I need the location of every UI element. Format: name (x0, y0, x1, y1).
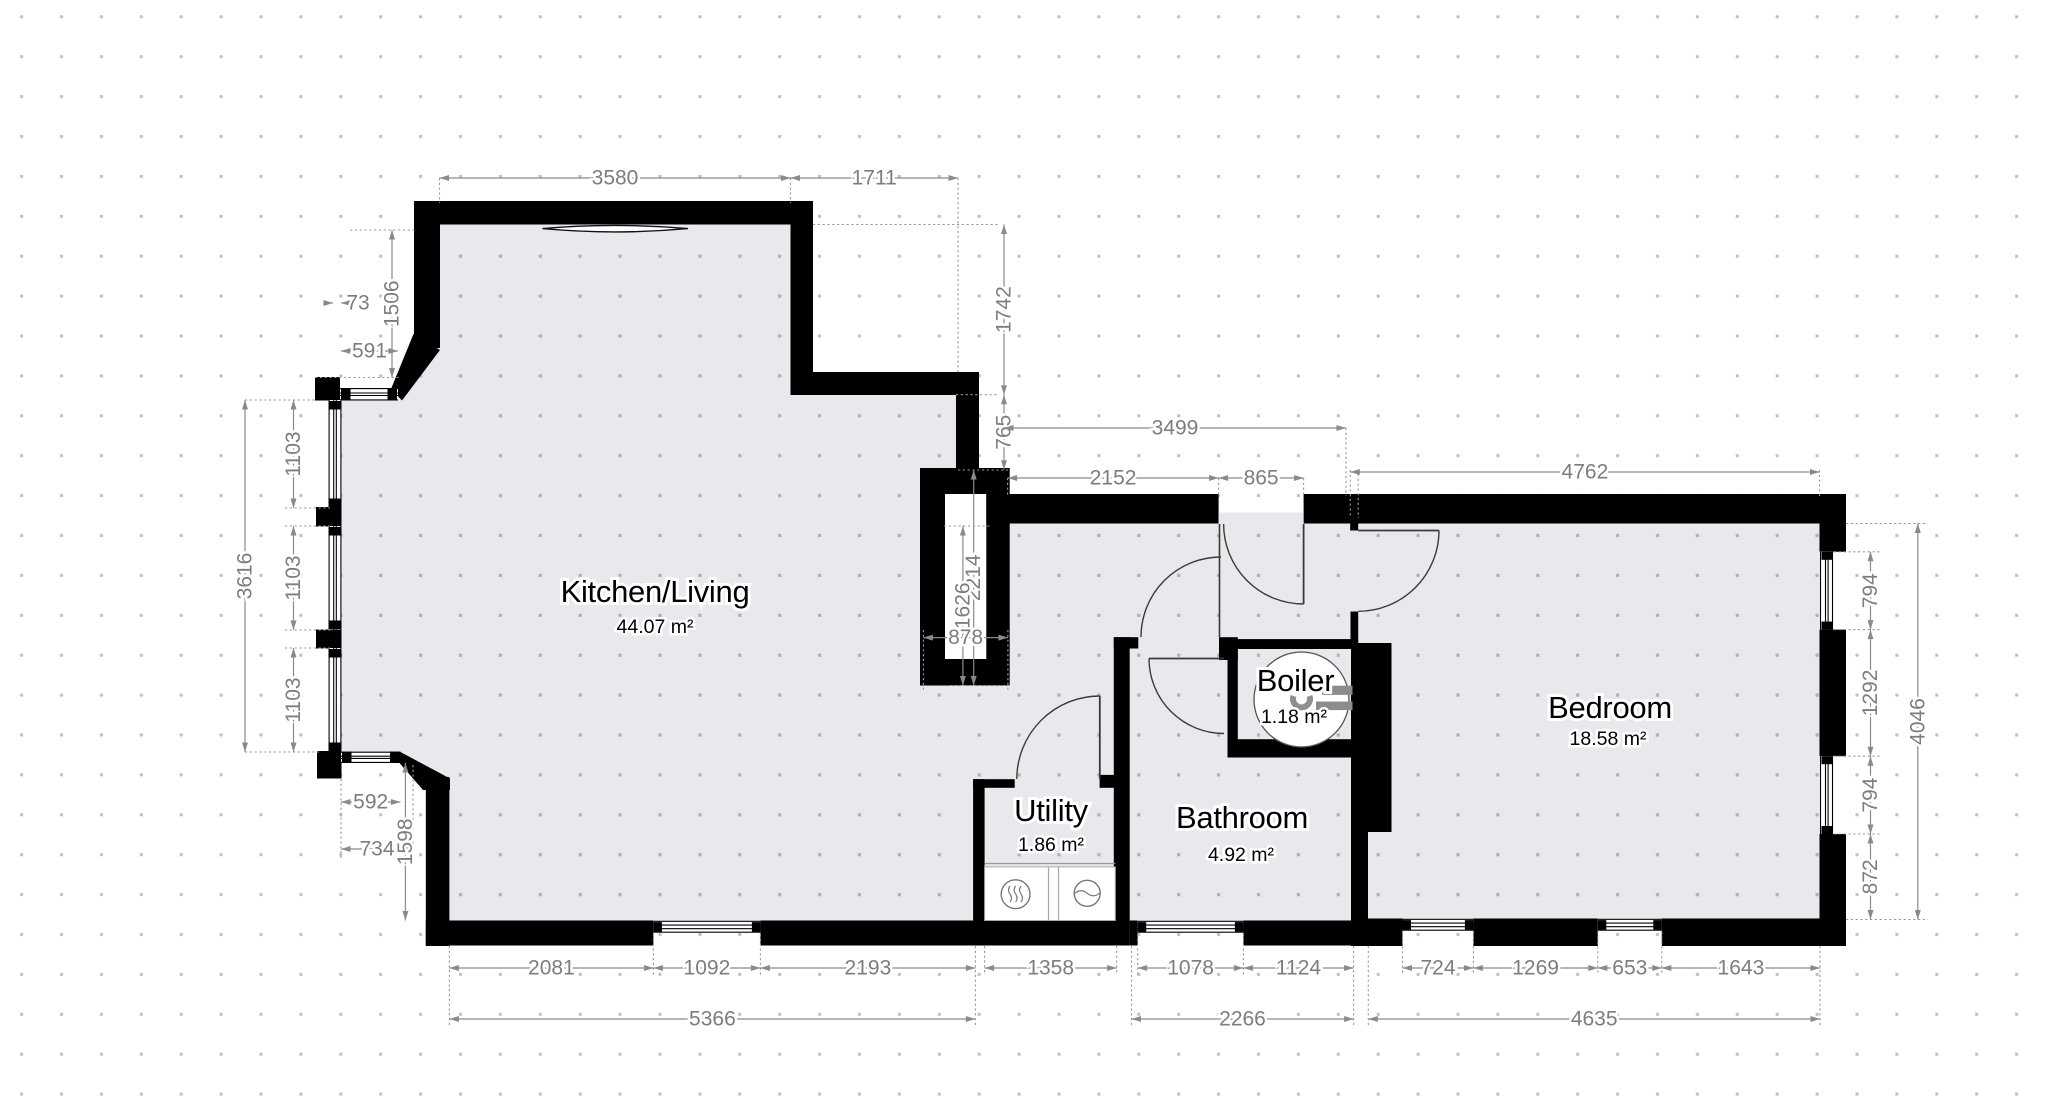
svg-text:872: 872 (1859, 859, 1882, 894)
svg-text:1103: 1103 (282, 431, 305, 476)
svg-text:794: 794 (1859, 573, 1882, 608)
svg-text:1.18 m²: 1.18 m² (1261, 706, 1328, 728)
svg-text:73: 73 (346, 292, 369, 315)
svg-text:18.58 m²: 18.58 m² (1570, 728, 1647, 750)
svg-text:1598: 1598 (394, 818, 417, 865)
svg-text:Utility: Utility (1014, 793, 1088, 828)
svg-text:2193: 2193 (845, 957, 892, 980)
svg-text:1643: 1643 (1718, 957, 1765, 980)
svg-text:3616: 3616 (234, 553, 257, 600)
svg-text:4762: 4762 (1562, 461, 1609, 484)
svg-text:3499: 3499 (1152, 417, 1199, 440)
svg-text:1626: 1626 (951, 582, 974, 629)
svg-text:794: 794 (1859, 777, 1882, 812)
svg-text:2266: 2266 (1219, 1008, 1266, 1031)
svg-text:Bedroom: Bedroom (1548, 690, 1672, 725)
svg-text:1103: 1103 (282, 555, 305, 600)
svg-text:44.07 m²: 44.07 m² (617, 616, 694, 638)
svg-text:1.86 m²: 1.86 m² (1018, 834, 1085, 856)
svg-text:724: 724 (1420, 957, 1455, 980)
svg-text:2152: 2152 (1090, 467, 1137, 490)
svg-text:765: 765 (993, 415, 1016, 450)
svg-text:1292: 1292 (1859, 670, 1882, 717)
svg-text:1269: 1269 (1512, 957, 1559, 980)
svg-text:653: 653 (1612, 957, 1647, 980)
svg-text:2081: 2081 (528, 957, 575, 980)
svg-text:Bathroom: Bathroom (1176, 800, 1308, 835)
svg-text:1742: 1742 (993, 286, 1016, 333)
svg-text:878: 878 (948, 626, 983, 649)
svg-text:4635: 4635 (1571, 1008, 1618, 1031)
svg-text:Kitchen/Living: Kitchen/Living (561, 574, 750, 609)
svg-text:Boiler: Boiler (1257, 663, 1334, 698)
svg-text:592: 592 (353, 791, 388, 814)
svg-text:1092: 1092 (684, 957, 731, 980)
svg-text:1078: 1078 (1167, 957, 1214, 980)
svg-text:4.92 m²: 4.92 m² (1208, 844, 1275, 866)
svg-text:1103: 1103 (282, 677, 305, 722)
svg-text:1711: 1711 (852, 167, 897, 190)
svg-text:865: 865 (1244, 467, 1279, 490)
svg-text:734: 734 (359, 838, 394, 861)
svg-text:591: 591 (352, 340, 387, 363)
svg-text:3580: 3580 (592, 167, 639, 190)
svg-text:1358: 1358 (1027, 957, 1074, 980)
svg-text:1506: 1506 (381, 280, 404, 327)
svg-text:4046: 4046 (1906, 698, 1929, 745)
svg-text:1124: 1124 (1276, 957, 1321, 980)
svg-text:5366: 5366 (689, 1008, 736, 1031)
